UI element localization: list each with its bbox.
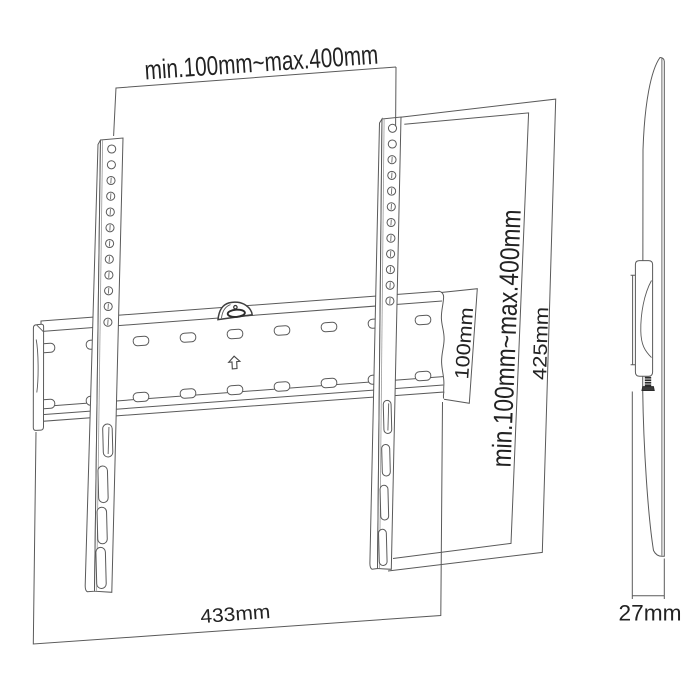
svg-text:433mm: 433mm bbox=[200, 601, 271, 628]
svg-text:min.100mm~max.400mm: min.100mm~max.400mm bbox=[486, 209, 526, 468]
svg-text:425mm: 425mm bbox=[529, 307, 553, 381]
svg-text:min.100mm~max.400mm: min.100mm~max.400mm bbox=[144, 40, 379, 86]
svg-text:27mm: 27mm bbox=[619, 601, 682, 626]
svg-text:100mm: 100mm bbox=[451, 307, 478, 380]
